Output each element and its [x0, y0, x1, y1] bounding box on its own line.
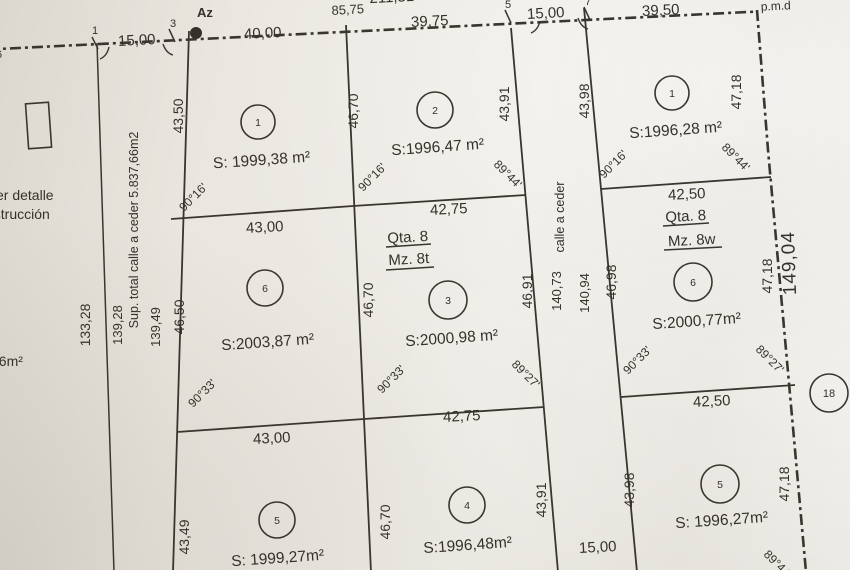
- parcel-t3-number: 3: [445, 295, 451, 307]
- above-line-measure: 85,75: [331, 1, 364, 18]
- dim-hook-1: [100, 47, 109, 59]
- side-r3-4718: 47,18: [776, 466, 792, 501]
- top-measure-3975: 39,75: [411, 12, 449, 31]
- street-right-measure-a: 140,73: [549, 271, 564, 311]
- vertex-1-label: 1: [92, 25, 98, 37]
- street-left-measure-b: 139,49: [148, 307, 163, 347]
- side-r3-4391: 43,91: [533, 482, 549, 517]
- divider-h1a-label: 43,00: [246, 218, 284, 237]
- parcel-w6-number: 6: [690, 277, 696, 289]
- block-8t-mz: Mz. 8t: [388, 250, 431, 269]
- top-measure-40: 40,00: [244, 24, 282, 43]
- angle-t6-bl: 90°33': [185, 376, 219, 410]
- side-r2-4718: 47,18: [759, 258, 775, 293]
- vertex-7-label: 7: [585, 0, 591, 8]
- scanned-survey-plan: 211,31 6 1 15,00 3 Az 40,00 85,75 39,75 …: [0, 0, 850, 570]
- top-measure-3950: 39,50: [642, 1, 680, 20]
- margin-measure-13328: 133,28: [77, 303, 93, 346]
- boundary-lines: [0, 10, 806, 570]
- parcel-w1-number: 1: [669, 88, 675, 100]
- top-cut-measure: 211,31: [369, 0, 415, 7]
- side-r3-4398: 43,98: [621, 472, 637, 507]
- margin-note-line1: er detalle: [0, 187, 54, 203]
- side-r1-4398: 43,98: [576, 83, 592, 118]
- angle-t2-br: 89°44': [491, 157, 525, 191]
- divider-h2a-label: 43,00: [253, 429, 291, 448]
- vertex-6-label: 6: [0, 49, 2, 61]
- vertex-18-label: 18: [823, 388, 835, 400]
- margin-partial-area: 96m²: [0, 353, 23, 369]
- side-r1-4670: 46,70: [345, 93, 361, 128]
- street-right-name: calle a ceder: [553, 182, 567, 253]
- side-r2-4698: 46,98: [603, 264, 619, 299]
- angle-w1-br: 89°44': [719, 140, 753, 174]
- divider-h1c-label: 42,50: [668, 185, 706, 204]
- angle-t3-br: 89°27': [509, 357, 543, 391]
- parcel-t4-number: 4: [464, 500, 470, 512]
- azimuth-label: Az: [197, 5, 213, 20]
- divider-h1b-label: 42,75: [430, 200, 468, 219]
- parcel-circles: 1 2 6 3 5 4 1 6 5 18: [241, 76, 848, 538]
- side-r3-4670: 46,70: [377, 504, 393, 539]
- angle-w6-bl: 90°33': [620, 343, 654, 377]
- right-total-measure: 149,04: [778, 231, 801, 296]
- street-right-measure-b: 140,94: [577, 273, 592, 313]
- margin-note-line2: nstrucción: [0, 206, 50, 222]
- divider-h1a: [171, 206, 353, 219]
- divider-h2c-label: 42,50: [693, 392, 731, 411]
- parcel-t4-area: S:1996,48m²: [423, 534, 513, 557]
- tick-v5: [505, 10, 511, 23]
- parcel-w5-number: 5: [717, 479, 723, 491]
- parcel-w6-area: S:2000,77m²: [652, 310, 742, 333]
- side-r2-4691: 46,91: [519, 273, 535, 308]
- street-left-labels: Sup. total calle a ceder 5.837,66m2 139,…: [110, 132, 163, 347]
- divider-h2b-label: 42,75: [443, 407, 481, 426]
- parcel-t3-area: S:2000,98 m²: [405, 327, 499, 350]
- side-r2-4650: 46,50: [171, 299, 187, 334]
- top-measure-15a: 15,00: [118, 31, 156, 50]
- top-measure-15b: 15,00: [527, 4, 565, 23]
- parcel-t2-area: S:1996,47 m²: [391, 136, 485, 159]
- dim-hook-2: [163, 44, 173, 55]
- parcel-t1-area: S: 1999,38 m²: [213, 149, 311, 173]
- angle-t1-bl: 90°16': [176, 180, 210, 214]
- azimuth-point-dot: [190, 27, 202, 39]
- side-r2-4670: 46,70: [360, 282, 376, 317]
- parcel-t2-number: 2: [432, 105, 438, 117]
- top-boundary-labels: 211,31 6 1 15,00 3 Az 40,00 85,75 39,75 …: [0, 0, 791, 61]
- street-left-measure-a: 139,28: [110, 305, 125, 345]
- pmd-label: p.m.d: [760, 0, 791, 14]
- street-left-name: Sup. total calle a ceder 5.837,66m2: [127, 132, 141, 329]
- street-right-labels: calle a ceder 140,73 140,94 15,00: [549, 182, 617, 557]
- survey-plan-canvas: 211,31 6 1 15,00 3 Az 40,00 85,75 39,75 …: [0, 0, 850, 570]
- side-r1-4350: 43,50: [170, 98, 186, 133]
- street-right-width-bottom: 15,00: [579, 538, 617, 557]
- side-r1-4718: 47,18: [728, 74, 744, 109]
- parcel-t1-number: 1: [255, 117, 261, 129]
- angle-w6-br: 89°27': [753, 342, 787, 376]
- parcel-t5-number: 5: [274, 515, 280, 527]
- parcel-t5-area: S: 1999,27m²: [231, 547, 325, 570]
- vertex-5-label: 5: [505, 0, 511, 11]
- angle-t2-bl: 90°16': [355, 160, 389, 194]
- angle-w1-bl: 90°16': [596, 147, 630, 181]
- parcel-w5-area: S: 1996,27m²: [675, 509, 769, 532]
- parcel-w1-area: S:1996,28 m²: [629, 119, 723, 142]
- parcel-t6-area: S:2003,87 m²: [221, 331, 315, 354]
- vertex-3-label: 3: [170, 18, 176, 30]
- left-margin-labels: er detalle nstrucción 96m² 133,28: [0, 187, 93, 369]
- side-r3-4349: 43,49: [176, 519, 192, 554]
- parcel-lines: [97, 8, 795, 570]
- building-symbol: [25, 102, 51, 148]
- parcel-t6-number: 6: [262, 283, 268, 295]
- side-r1-4391: 43,91: [496, 86, 512, 121]
- angle-t3-bl: 90°33': [374, 362, 408, 396]
- angle-w5-br: 89°44': [761, 547, 795, 570]
